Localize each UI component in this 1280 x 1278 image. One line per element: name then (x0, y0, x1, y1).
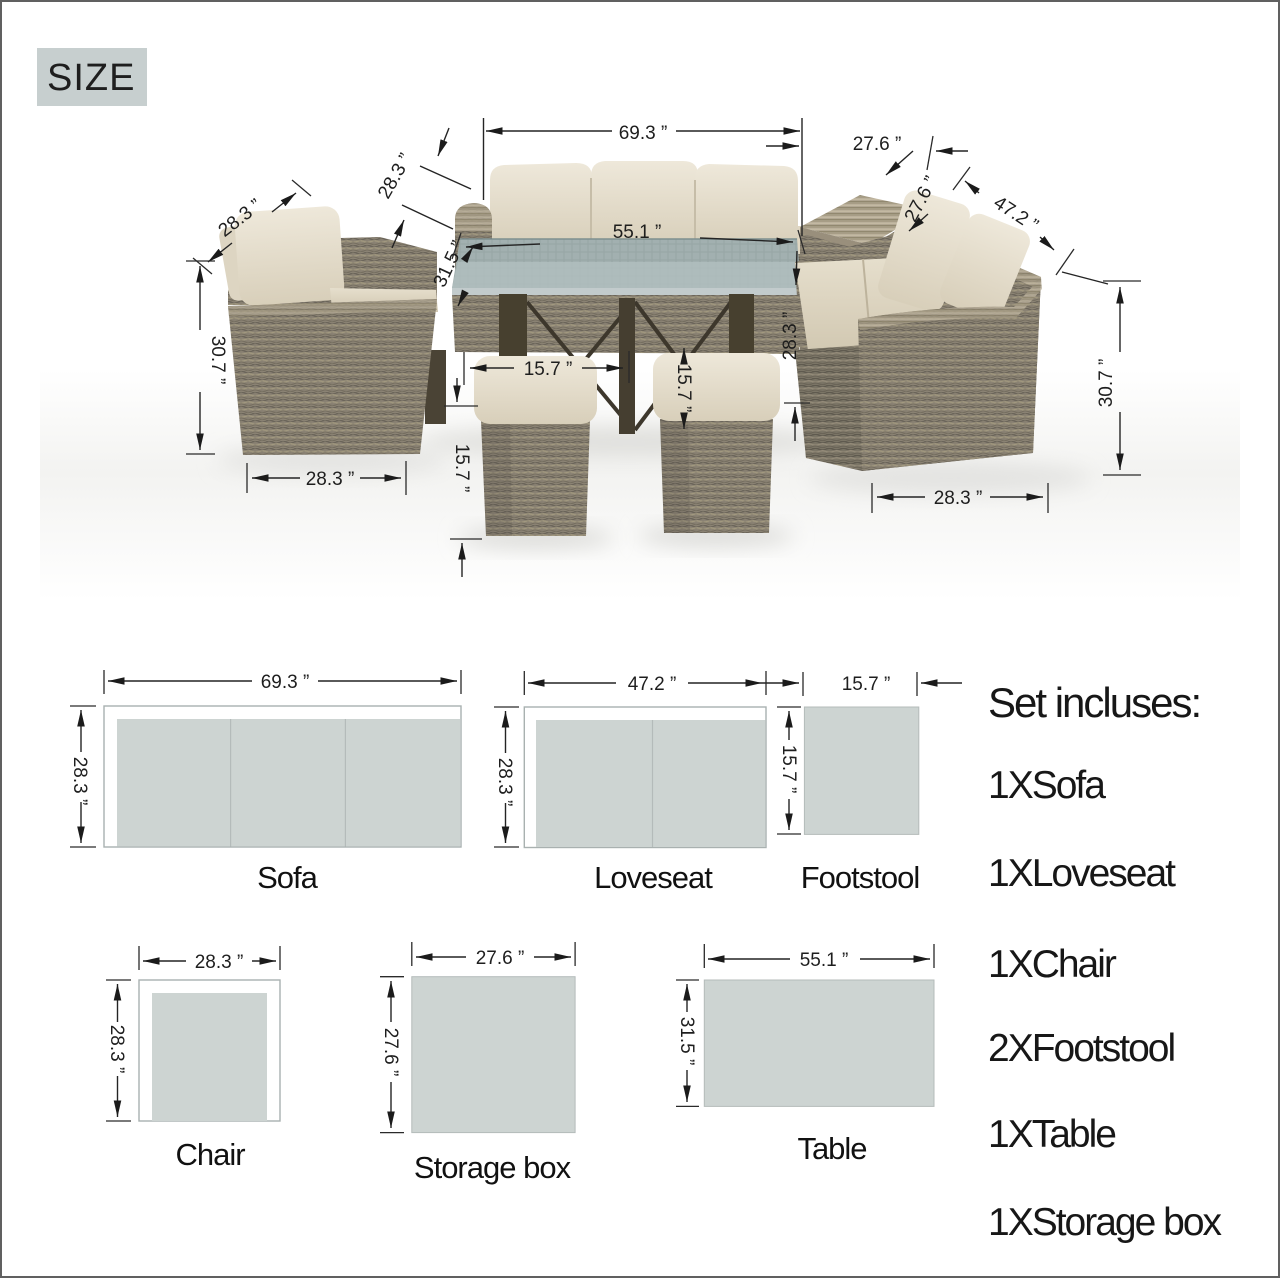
svg-text:28.3 ”: 28.3 ” (195, 952, 244, 973)
svg-text:28.3 ”: 28.3 ” (306, 469, 355, 490)
svg-text:28.3 ”: 28.3 ” (69, 757, 90, 806)
svg-text:15.7 ”: 15.7 ” (842, 674, 891, 695)
svg-text:Set incluses:: Set incluses: (988, 679, 1200, 726)
svg-text:28.3 ”: 28.3 ” (934, 488, 983, 509)
svg-text:1XLoveseat: 1XLoveseat (988, 852, 1176, 895)
svg-text:Storage box: Storage box (414, 1150, 572, 1185)
svg-text:27.6 ”: 27.6 ” (853, 134, 902, 155)
svg-text:Sofa: Sofa (257, 860, 319, 895)
svg-text:15.7 ”: 15.7 ” (673, 364, 694, 413)
svg-text:Loveseat: Loveseat (594, 860, 713, 895)
svg-text:69.3 ”: 69.3 ” (261, 672, 310, 693)
svg-text:1XSofa: 1XSofa (988, 764, 1106, 807)
svg-text:55.1 ”: 55.1 ” (613, 222, 662, 243)
svg-text:Footstool: Footstool (801, 860, 920, 895)
svg-text:SIZE: SIZE (47, 57, 135, 99)
svg-text:15.7 ”: 15.7 ” (451, 444, 472, 493)
svg-text:28.3 ”: 28.3 ” (106, 1025, 127, 1074)
svg-text:1XStorage box: 1XStorage box (988, 1201, 1223, 1244)
svg-text:55.1 ”: 55.1 ” (800, 950, 849, 971)
svg-text:Table: Table (797, 1131, 866, 1166)
svg-text:30.7 ”: 30.7 ” (1096, 359, 1117, 408)
svg-text:Chair: Chair (175, 1137, 245, 1172)
svg-text:1XTable: 1XTable (988, 1113, 1115, 1156)
svg-text:28.3 ”: 28.3 ” (494, 758, 515, 807)
svg-text:69.3 ”: 69.3 ” (619, 123, 668, 144)
svg-text:30.7 ”: 30.7 ” (207, 336, 228, 385)
svg-text:27.6 ”: 27.6 ” (476, 948, 525, 969)
svg-text:27.6 ”: 27.6 ” (380, 1028, 401, 1077)
svg-text:28.3 ”: 28.3 ” (780, 312, 801, 361)
svg-text:15.7 ”: 15.7 ” (524, 359, 573, 380)
svg-text:2XFootstool: 2XFootstool (988, 1027, 1174, 1070)
svg-text:15.7 ”: 15.7 ” (778, 745, 799, 794)
svg-text:31.5 ”: 31.5 ” (676, 1017, 697, 1066)
svg-text:1XChair: 1XChair (988, 943, 1117, 986)
svg-text:47.2 ”: 47.2 ” (628, 674, 677, 695)
